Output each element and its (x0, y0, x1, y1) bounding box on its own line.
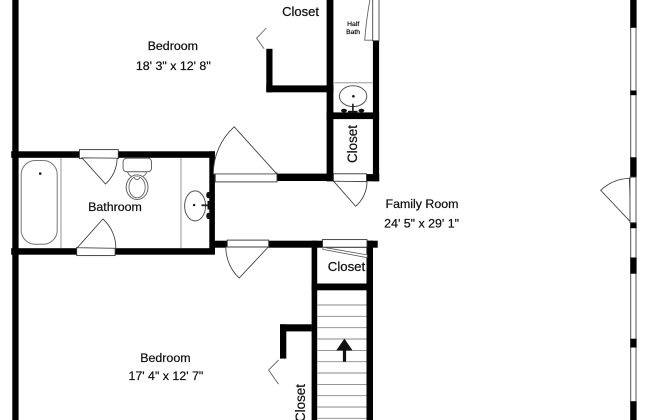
svg-text:Family Room: Family Room (386, 197, 459, 211)
svg-text:Bedroom: Bedroom (140, 351, 190, 365)
svg-text:Closet: Closet (293, 384, 308, 420)
svg-text:Bedroom: Bedroom (148, 39, 198, 53)
svg-text:Half: Half (347, 21, 359, 28)
svg-text:17' 4" x 12' 7": 17' 4" x 12' 7" (128, 369, 203, 383)
svg-text:Closet: Closet (282, 4, 319, 19)
svg-text:24' 5" x 29' 1": 24' 5" x 29' 1" (384, 217, 459, 231)
svg-text:Closet: Closet (345, 125, 360, 163)
svg-text:18' 3" x 12' 8": 18' 3" x 12' 8" (136, 59, 211, 73)
svg-text:Bathroom: Bathroom (88, 200, 142, 214)
svg-text:Bath: Bath (346, 29, 360, 36)
svg-text:Closet: Closet (328, 259, 366, 274)
